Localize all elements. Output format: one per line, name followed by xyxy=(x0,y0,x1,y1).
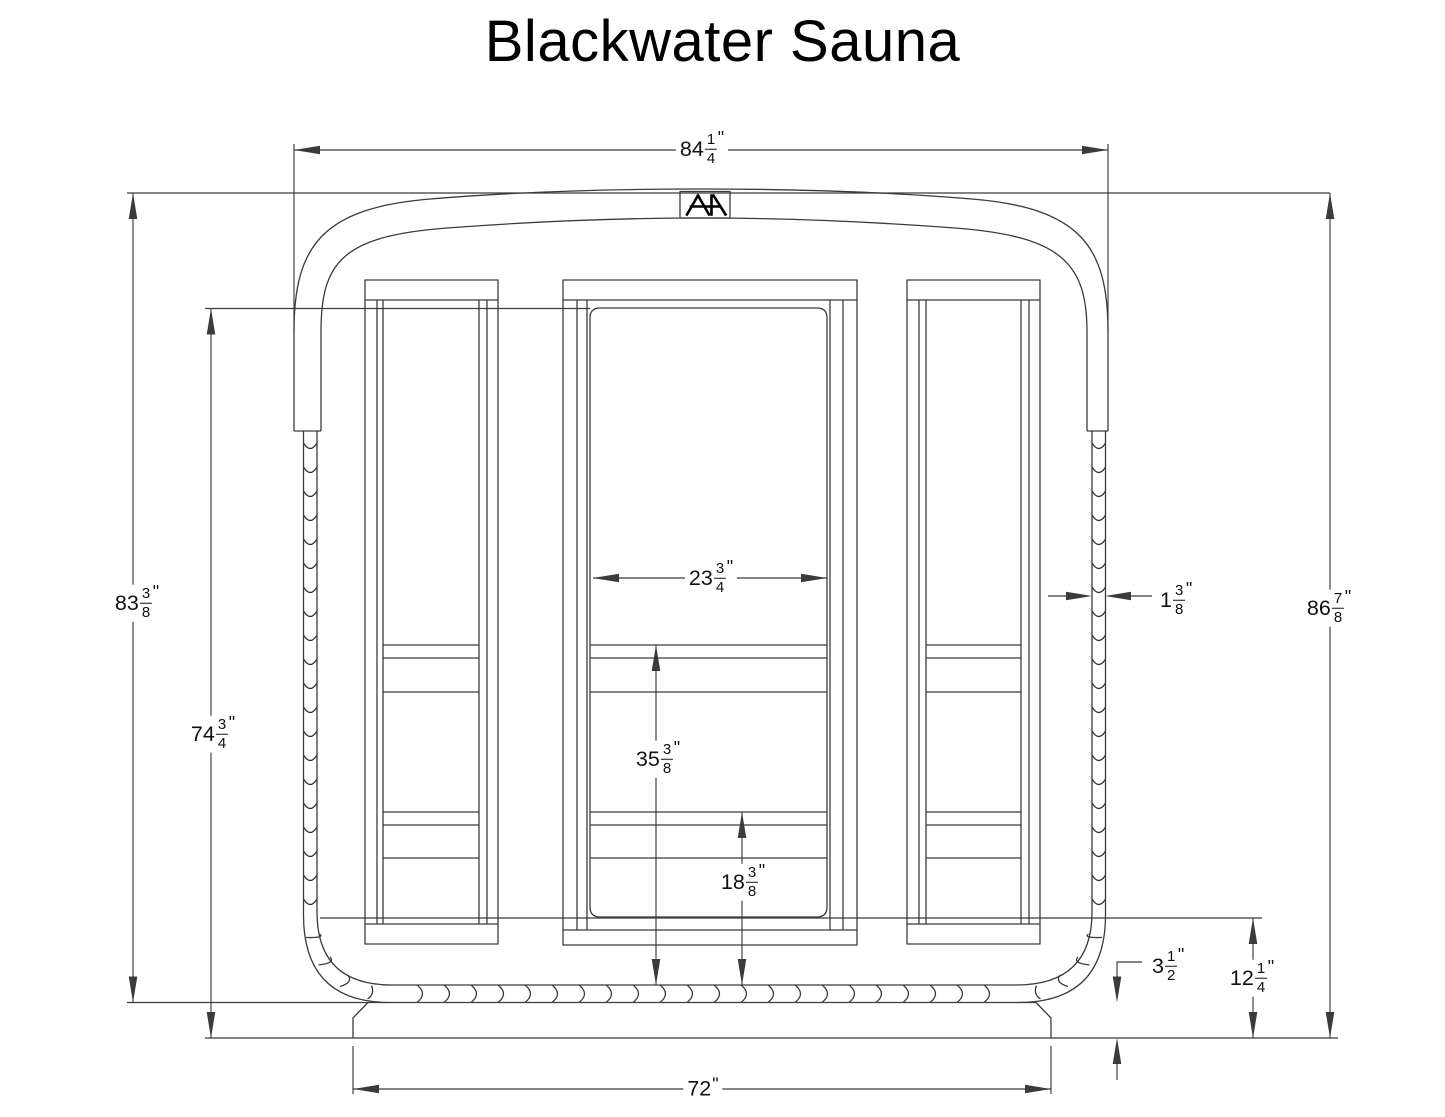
base-outline xyxy=(353,1003,1051,1039)
dim-label-base-height: 312" xyxy=(1148,948,1188,985)
base-platform xyxy=(353,1003,1051,1039)
logo-strokes xyxy=(687,196,726,215)
sauna-technical-drawing: AH xyxy=(0,0,1445,1117)
right-window xyxy=(907,280,1040,944)
dim-label-wall-thickness: 138" xyxy=(1156,582,1196,619)
dim-label-door-glass-width: 2334" xyxy=(685,560,737,597)
inner-shell xyxy=(321,218,1087,431)
dim-label-lower-bench-height: 1838" xyxy=(717,864,769,901)
door-frame xyxy=(563,280,857,945)
bottom-left-corner-joints xyxy=(306,934,373,999)
bottom-left-corner-band xyxy=(304,912,393,1003)
dim-label-body-height: 8338" xyxy=(111,585,163,622)
dim-label-door-top-height: 7434" xyxy=(187,716,239,753)
bottom-shingle-joints xyxy=(417,985,990,1003)
dim-label-floor-height: 1214" xyxy=(1226,960,1278,997)
left-window xyxy=(365,280,498,944)
dim-label-total-height: 8678" xyxy=(1303,590,1355,627)
door xyxy=(563,280,857,945)
left-window-bench-lines xyxy=(383,645,479,858)
dim-label-overall-width: 8414" xyxy=(676,131,728,168)
left-wall-band xyxy=(304,431,318,915)
right-window-frame xyxy=(907,280,1040,944)
left-shingle-joints xyxy=(304,443,318,905)
ah-monogram-logo: AH xyxy=(680,192,730,219)
outer-shell xyxy=(294,189,1108,431)
right-window-jambs xyxy=(919,300,1029,924)
right-window-bench-lines xyxy=(926,645,1021,858)
drawing-sheet: AH xyxy=(0,0,1445,1117)
door-bench-lines xyxy=(590,645,827,858)
drawing-title: Blackwater Sauna xyxy=(0,8,1445,75)
dim-label-base-width: 72" xyxy=(683,1077,722,1101)
left-window-jambs xyxy=(377,300,487,924)
bottom-right-corner-joints xyxy=(1035,934,1102,999)
bottom-right-corner-band xyxy=(1016,912,1106,1003)
door-jambs xyxy=(577,300,843,930)
right-shingle-joints xyxy=(1092,443,1106,905)
right-wall-band xyxy=(1092,431,1106,915)
left-window-frame xyxy=(365,280,498,944)
dim-label-upper-bench-height: 3538" xyxy=(632,741,684,778)
